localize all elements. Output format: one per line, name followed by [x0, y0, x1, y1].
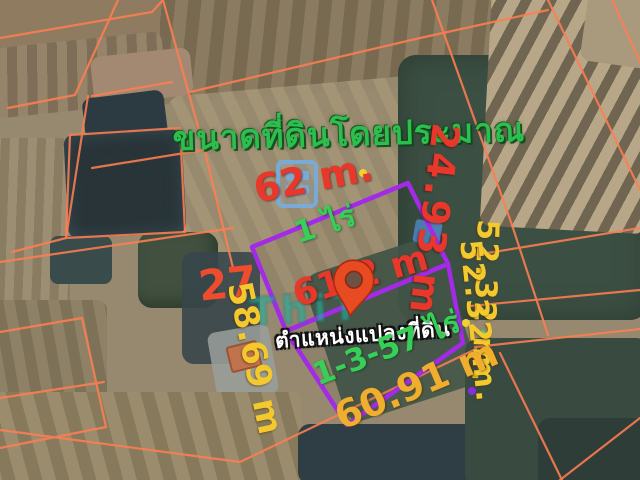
pond [538, 418, 640, 480]
location-pin-icon [327, 256, 379, 320]
pond [298, 424, 488, 480]
pond [63, 129, 186, 239]
field-patch [579, 0, 640, 70]
satellite-map-image: ThiT ขนาดที่ดินโดยประมาณ 62 m. 24.93 m 5… [0, 0, 640, 480]
pond [50, 236, 112, 284]
